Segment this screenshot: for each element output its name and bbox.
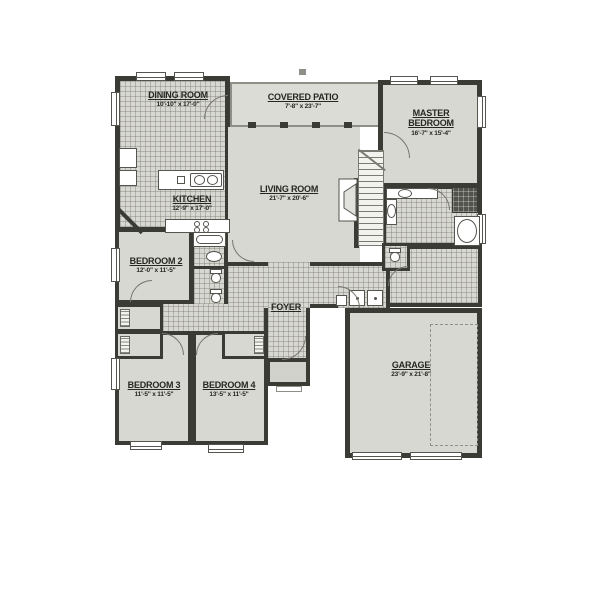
patio-post — [280, 122, 288, 128]
patio-post — [344, 122, 352, 128]
wall-bath-divider — [190, 266, 228, 269]
window — [430, 76, 458, 85]
window — [111, 92, 120, 126]
front-porch — [266, 358, 310, 386]
toilet — [389, 248, 401, 262]
room-covered-patio — [230, 82, 380, 127]
patio-post — [248, 122, 256, 128]
garage-door-opening — [352, 452, 402, 460]
wall-segment — [310, 304, 338, 308]
window — [130, 441, 162, 450]
shower — [452, 187, 478, 213]
window — [477, 96, 486, 128]
window — [111, 358, 120, 390]
staircase — [358, 150, 384, 246]
sink-bowl — [194, 175, 205, 185]
sink-bowl — [387, 204, 396, 218]
stair-break-line — [358, 149, 386, 171]
window — [174, 72, 204, 81]
master-tub — [457, 219, 477, 243]
toilet — [210, 269, 222, 283]
garage-storage-dashed — [430, 324, 478, 446]
closet-rod — [120, 309, 130, 327]
hall-to-bedrooms — [163, 304, 268, 332]
wall-segment — [310, 262, 390, 266]
kitchen-cabinet — [119, 170, 137, 186]
dryer — [367, 290, 383, 306]
window — [111, 248, 120, 282]
sink-bowl — [207, 175, 218, 185]
bathroom-sink — [206, 251, 222, 262]
patio-post — [312, 122, 320, 128]
toilet — [210, 289, 222, 303]
wall-segment — [228, 262, 268, 266]
hall-to-garage — [228, 262, 390, 308]
window — [208, 444, 244, 453]
garage-door-opening — [410, 452, 462, 460]
wall-segment — [264, 308, 268, 362]
closet-rod — [254, 336, 264, 354]
window — [390, 76, 418, 85]
porch-step — [276, 386, 302, 392]
window — [136, 72, 166, 81]
bathtub-basin — [196, 235, 223, 244]
island-cooktop-switch — [177, 176, 185, 184]
refrigerator — [119, 148, 137, 168]
room-bedroom-2 — [115, 228, 193, 304]
patio-post-top — [299, 69, 306, 75]
wall-segment — [306, 308, 310, 362]
sink-bowl — [398, 189, 412, 198]
floor-plan: DINING ROOM 10'-10" x 17'-0" COVERED PAT… — [0, 0, 600, 600]
fireplace — [338, 178, 358, 222]
closet-rod — [120, 336, 130, 354]
